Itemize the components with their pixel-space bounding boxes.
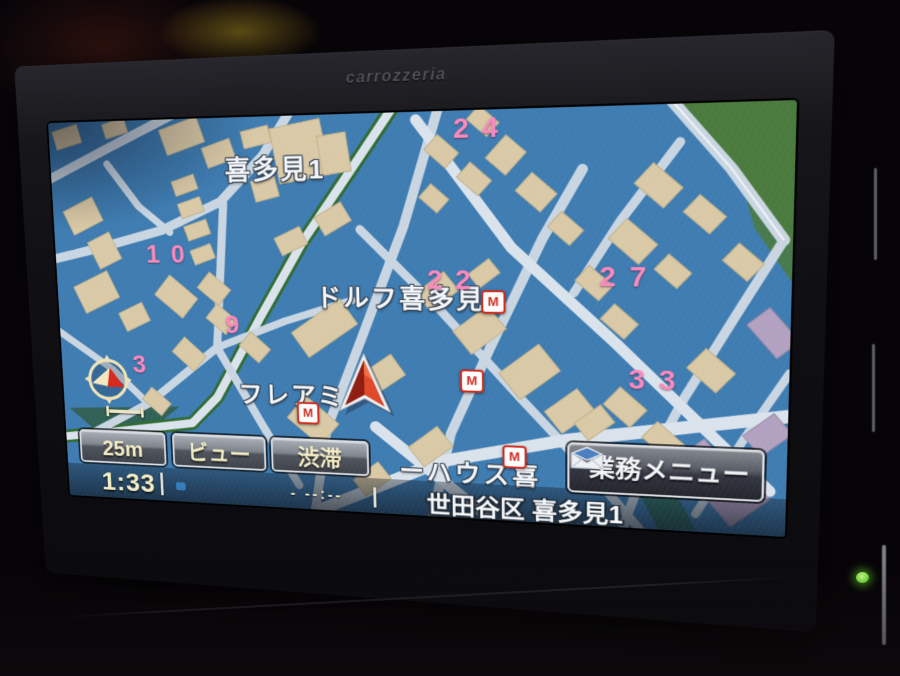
reflection-streak — [874, 168, 877, 260]
vics-indicator — [176, 482, 186, 490]
reflection-streak — [882, 545, 886, 645]
clock: 1:33 — [101, 467, 156, 499]
traffic-button[interactable]: 渋滞 — [271, 437, 370, 476]
bank-m-icon: M — [297, 402, 320, 425]
poi-label-fureami: フレアミ — [238, 374, 345, 413]
bank-m-icon: M — [502, 445, 526, 469]
view-button[interactable]: ビュー — [172, 433, 267, 471]
block-number: 24 — [453, 111, 511, 145]
photo-scene: carrozzeria — [0, 0, 900, 676]
eta-placeholder: - --:-- — [290, 486, 343, 505]
block-number: 33 — [628, 364, 689, 398]
business-menu-label: 業務メニュー — [589, 444, 750, 500]
power-led — [856, 572, 869, 583]
block-number: 3 — [132, 350, 158, 379]
nav-device: carrozzeria — [48, 100, 797, 537]
block-number: 27 — [599, 261, 660, 294]
bank-m-icon: M — [481, 290, 506, 314]
business-menu-button[interactable]: 業務メニュー — [567, 442, 765, 502]
block-number: 9 — [225, 310, 252, 340]
block-number: 22 — [427, 264, 484, 296]
bank-m-icon: M — [460, 369, 484, 393]
reflection-streak — [872, 344, 875, 432]
block-number: 10 — [145, 240, 196, 270]
scale-button[interactable]: 25m — [79, 429, 166, 466]
nav-screen[interactable]: 喜多見1 ドルフ喜多見 フレアミ ーハウス喜 24 10 9 3 22 27 3… — [48, 100, 797, 537]
district-label: 喜多見1 — [224, 148, 326, 188]
eta-divider — [373, 487, 376, 507]
